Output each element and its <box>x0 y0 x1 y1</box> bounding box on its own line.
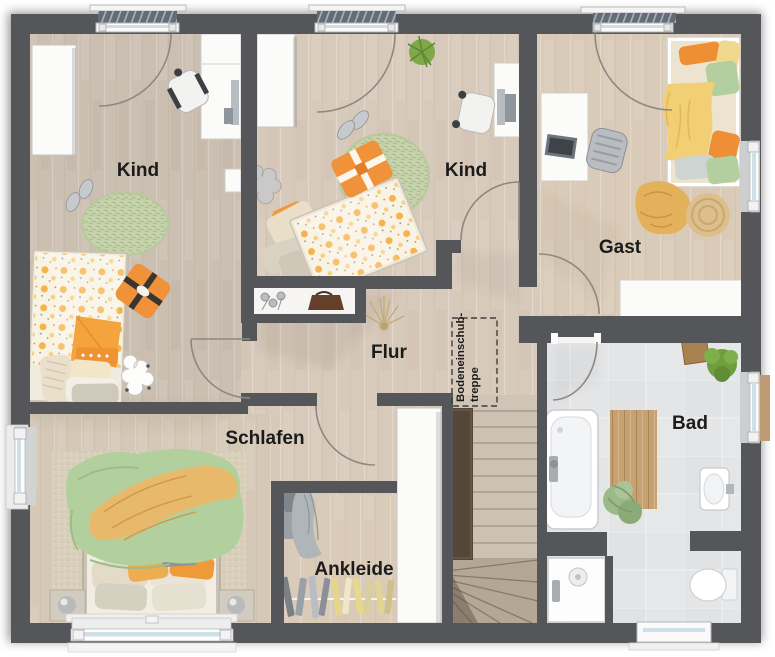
svg-text:Schlafen: Schlafen <box>225 428 304 449</box>
svg-text:treppe: treppe <box>469 367 481 402</box>
svg-text:Gast: Gast <box>599 237 642 258</box>
svg-text:Kind: Kind <box>445 160 487 181</box>
svg-text:Kind: Kind <box>117 160 159 181</box>
svg-text:Flur: Flur <box>371 342 407 363</box>
svg-text:Bad: Bad <box>672 413 708 434</box>
svg-text:Ankleide: Ankleide <box>314 559 393 580</box>
svg-text:Bodeneinschub-: Bodeneinschub- <box>455 313 467 402</box>
